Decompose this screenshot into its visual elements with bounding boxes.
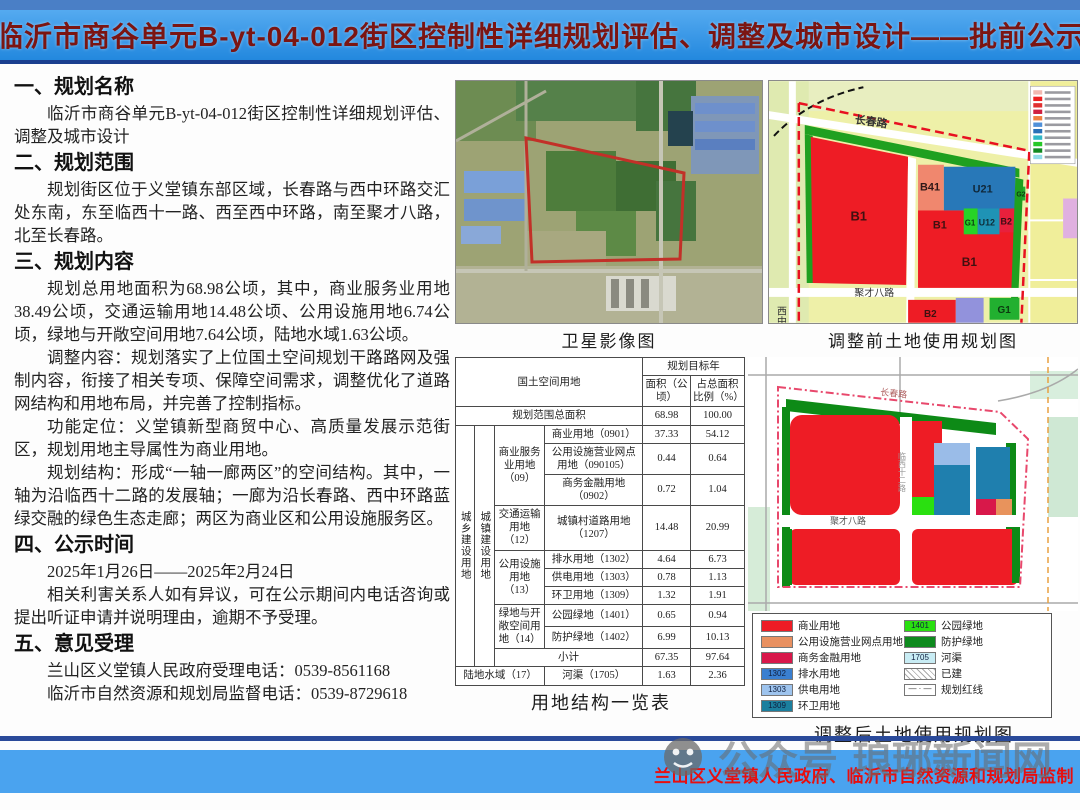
legend-swatch: 1401: [904, 620, 936, 632]
parcel-label: U12: [979, 217, 995, 227]
table-row: 规划范围总面积 68.98 100.00: [456, 407, 745, 425]
legend-text-line: [1045, 124, 1071, 127]
cell-area: 4.64: [643, 550, 691, 568]
road: [769, 288, 1077, 297]
total-label: 规划范围总面积: [456, 407, 643, 425]
parcel-finance: [976, 499, 996, 515]
legend-label: 已建: [941, 666, 962, 681]
section-plan-name: 一、规划名称 临沂市商谷单元B-yt-04-012街区控制性详细规划评估、调整及…: [14, 74, 450, 148]
row-label: 公园绿地（1401）: [545, 604, 643, 626]
group-label: 商业服务业用地（09）: [494, 425, 545, 506]
water-label: 陆地水域（17）: [456, 667, 545, 685]
legend-label: 公园绿地: [941, 618, 983, 633]
legend-text-line: [1045, 143, 1071, 146]
paragraph: 规划总用地面积为68.98公顷，其中，商业服务业用地38.49公顷，交通运输用地…: [14, 277, 450, 346]
legend-item: 规划红线: [904, 683, 1047, 696]
row-label: 防护绿地（1402）: [545, 627, 643, 649]
total-pct: 100.00: [691, 407, 745, 425]
cell-pct: 10.13: [691, 627, 745, 649]
cell-pct: 0.94: [691, 604, 745, 626]
notice-poster: 临沂市商谷单元B-yt-04-012街区控制性详细规划评估、调整及城市设计——批…: [0, 0, 1080, 810]
legend-swatch: [904, 636, 936, 648]
group-label: 绿地与开敞空间用地（14）: [494, 604, 545, 648]
parcel-label: U21: [973, 184, 993, 196]
industrial-area: [464, 171, 526, 193]
legend-label: 环卫用地: [798, 698, 840, 713]
water-area: 1.63: [643, 667, 691, 685]
road: [778, 515, 1026, 527]
parcel-label: B2: [1000, 216, 1011, 226]
notice-dates: 2025年1月26日——2025年2月24日: [14, 560, 450, 583]
divider-rule: [0, 736, 1080, 741]
parcel-commercial: [912, 529, 1018, 585]
parcel-drainage: [976, 447, 1010, 499]
legend-swatch: [1033, 116, 1042, 120]
section-plan-scope: 二、规划范围 规划街区位于义堂镇东部区域，长春路与西中环路交汇处东南，东至临西十…: [14, 150, 450, 247]
legend-label: 供电用地: [798, 682, 840, 697]
cell-pct: 54.12: [691, 425, 745, 443]
cell-area: 0.72: [643, 474, 691, 505]
cell-pct: 1.13: [691, 568, 745, 586]
parcel-label: B1: [850, 208, 867, 223]
legend-item: 防护绿地: [904, 635, 1047, 648]
parcel-label: B41: [920, 182, 940, 194]
legend-item: 1309 环卫用地: [761, 699, 904, 712]
cell-pct: 0.64: [691, 443, 745, 474]
legend-item: 公用设施营业网点用地: [761, 635, 904, 648]
row-label: 商业用地（0901）: [545, 425, 643, 443]
legend-swatch: 1705: [904, 652, 936, 664]
parcel-label: B1: [933, 219, 947, 231]
legend-text-line: [1045, 130, 1071, 133]
parcel-label: B1: [962, 255, 978, 269]
legend-item: 商业用地: [761, 619, 904, 632]
legend-item: 1303 供电用地: [761, 683, 904, 696]
text-column: 一、规划名称 临沂市商谷单元B-yt-04-012街区控制性详细规划评估、调整及…: [14, 72, 450, 705]
cell-area: 0.78: [643, 568, 691, 586]
after-map-legend: 商业用地 公用设施营业网点用地 商务金融用地 1302 排水用地 1303 供电…: [752, 613, 1052, 718]
cell-area: 6.99: [643, 627, 691, 649]
legend-swatch: [1033, 97, 1042, 101]
legend-swatch: [1033, 123, 1042, 127]
table-row: 城乡建设用地 城镇建设用地 商业服务业用地（09） 商业用地（0901） 37.…: [456, 425, 745, 443]
road: [900, 417, 912, 587]
section-feedback: 五、意见受理 兰山区义堂镇人民政府受理电话：0539-8561168 临沂市自然…: [14, 631, 450, 705]
legend-text-line: [1045, 98, 1071, 101]
row-label: 排水用地（1302）: [545, 550, 643, 568]
legend-label: 排水用地: [798, 666, 840, 681]
before-map-block: 长春路 聚才八路 西中环路 B1 B41 U21 G2 B1 G1 U12 B2…: [768, 80, 1078, 352]
top-blue-strip: [0, 0, 1080, 10]
parcel-label: B2: [924, 309, 937, 320]
legend-item: 商务金融用地: [761, 651, 904, 664]
land-use-table: 国土空间用地 规划目标年 面积（公顷） 占总面积比例（%） 规划范围总面积 68…: [455, 357, 745, 686]
legend-item: 已建: [904, 667, 1047, 680]
legend-item: 1705 河渠: [904, 651, 1047, 664]
table-row: 小计 67.35 97.64: [456, 649, 745, 667]
subtotal-label: 小计: [494, 649, 642, 667]
page-title: 临沂市商谷单元B-yt-04-012街区控制性详细规划评估、调整及城市设计——批…: [0, 15, 1080, 55]
row-label: 环卫用地（1309）: [545, 586, 643, 604]
paragraph: 调整内容：规划落实了上位国土空间规划干路路网及强制内容，衔接了相关专项、保障空间…: [14, 346, 450, 415]
cell-area: 1.32: [643, 586, 691, 604]
vertical-label: 城乡建设用地: [456, 425, 475, 667]
title-banner: 临沂市商谷单元B-yt-04-012街区控制性详细规划评估、调整及城市设计——批…: [0, 10, 1080, 64]
cell-area: 0.44: [643, 443, 691, 474]
cell-pct: 1.91: [691, 586, 745, 604]
water-sub-label: 河渠（1705）: [545, 667, 643, 685]
row-label: 公用设施营业网点用地（090105）: [545, 443, 643, 474]
parcel-label: G1: [965, 218, 976, 227]
legend-swatch: [761, 636, 793, 648]
cell-pct: 20.99: [691, 506, 745, 550]
legend-column-right: 1401 公园绿地 防护绿地 1705 河渠 已建 规划红线: [904, 619, 1047, 712]
satellite-map-block: 卫星影像图: [455, 80, 763, 352]
subtotal-pct: 97.64: [691, 649, 745, 667]
paragraph: 相关利害关系人如有异议，可在公示期间内电话咨询或提出听证申请并说明理由，逾期不予…: [14, 583, 450, 629]
legend-swatch: 1303: [761, 684, 793, 696]
legend-swatch: 1302: [761, 668, 793, 680]
vertical-label: 城镇建设用地: [475, 425, 494, 667]
header-area: 面积（公顷）: [643, 376, 691, 407]
group-label: 公用设施用地（13）: [494, 550, 545, 604]
legend-text-line: [1045, 104, 1071, 107]
before-land-use-map: 长春路 聚才八路 西中环路 B1 B41 U21 G2 B1 G1 U12 B2…: [768, 80, 1078, 324]
table-row: 国土空间用地 规划目标年: [456, 358, 745, 376]
legend-label: 规划红线: [941, 682, 983, 697]
legend-text-line: [1045, 111, 1071, 114]
table-caption: 用地结构一览表: [455, 689, 747, 715]
row-label: 商务金融用地（0902）: [545, 474, 643, 505]
water-pct: 2.36: [691, 667, 745, 685]
section-heading: 四、公示时间: [14, 532, 450, 559]
parcel-power: [934, 443, 970, 465]
after-land-use-map: 长春路 聚才八路 临西十二路: [748, 357, 1078, 611]
after-map-caption: 调整后土地使用规划图: [748, 721, 1080, 747]
parcel-utility-outlet: [996, 499, 1012, 515]
legend-swatch: [1033, 155, 1042, 159]
section-notice-period: 四、公示时间 2025年1月26日——2025年2月24日 相关利害关系人如有异…: [14, 532, 450, 629]
cell-area: 14.48: [643, 506, 691, 550]
section-heading: 二、规划范围: [14, 150, 450, 177]
road: [789, 81, 796, 322]
legend-item: 1302 排水用地: [761, 667, 904, 680]
legend-label: 公用设施营业网点用地: [798, 634, 903, 649]
header-pct: 占总面积比例（%）: [691, 376, 745, 407]
legend-swatch: [761, 652, 793, 664]
cell-area: 0.65: [643, 604, 691, 626]
legend-label: 防护绿地: [941, 634, 983, 649]
land-table-block: 国土空间用地 规划目标年 面积（公顷） 占总面积比例（%） 规划范围总面积 68…: [455, 357, 747, 715]
paragraph: 临沂市商谷单元B-yt-04-012街区控制性详细规划评估、调整及城市设计: [14, 102, 450, 148]
section-plan-content: 三、规划内容 规划总用地面积为68.98公顷，其中，商业服务业用地38.49公顷…: [14, 249, 450, 530]
satellite-image: [455, 80, 763, 324]
cell-pct: 1.04: [691, 474, 745, 505]
legend-swatch: [1033, 148, 1042, 152]
cell-pct: 6.73: [691, 550, 745, 568]
legend-text-line: [1045, 91, 1071, 94]
parcel-label: G1: [998, 305, 1012, 316]
road-label: 西中环路: [774, 306, 786, 324]
legend-swatch: [904, 684, 936, 696]
section-heading: 三、规划内容: [14, 249, 450, 276]
legend-swatch: [761, 620, 793, 632]
row-label: 城镇村道路用地（1207）: [545, 506, 643, 550]
legend-swatch: [904, 668, 936, 680]
cell-area: 37.33: [643, 425, 691, 443]
legend-text-line: [1045, 149, 1071, 152]
road-label: 临西十二路: [898, 451, 907, 492]
table-row: 公用设施用地（13） 排水用地（1302） 4.64 6.73: [456, 550, 745, 568]
phone-line: 兰山区义堂镇人民政府受理电话：0539-8561168: [14, 659, 450, 682]
credit-text: 兰山区义堂镇人民政府、临沂市自然资源和规划局监制: [654, 762, 1074, 787]
before-map-caption: 调整前土地使用规划图: [768, 327, 1078, 352]
satellite-caption: 卫星影像图: [455, 327, 763, 352]
road-label: 聚才八路: [830, 515, 866, 526]
legend-label: 商业用地: [798, 618, 840, 633]
legend-text-line: [1045, 117, 1071, 120]
row-label: 供电用地（1303）: [545, 568, 643, 586]
legend-label: 河渠: [941, 650, 962, 665]
paragraph: 功能定位：义堂镇新型商贸中心、高质量发展示范街区，规划用地主导属性为商业用地。: [14, 415, 450, 461]
table-row: 绿地与开敞空间用地（14） 公园绿地（1401） 0.65 0.94: [456, 604, 745, 626]
header-year: 规划目标年: [643, 358, 745, 376]
legend-column-left: 商业用地 公用设施营业网点用地 商务金融用地 1302 排水用地 1303 供电…: [761, 619, 904, 712]
paragraph: 规划街区位于义堂镇东部区域，长春路与西中环路交汇处东南，东至临西十一路、西至西中…: [14, 178, 450, 247]
parcel-label: G2: [1016, 192, 1025, 199]
legend-swatch: [1033, 103, 1042, 107]
legend-text-line: [1045, 136, 1071, 139]
parcel-park-green: [912, 497, 934, 515]
legend-label: 商务金融用地: [798, 650, 861, 665]
section-heading: 一、规划名称: [14, 74, 450, 101]
legend-swatch: [1033, 135, 1042, 139]
paragraph: 规划结构：形成“一轴一廊两区”的空间结构。其中，一轴为沿临西十二路的发展轴；一廊…: [14, 461, 450, 530]
parcel-commercial: [790, 529, 900, 585]
section-heading: 五、意见受理: [14, 631, 450, 658]
subtotal-area: 67.35: [643, 649, 691, 667]
legend-swatch: [1033, 110, 1042, 114]
after-map-block: 长春路 聚才八路 临西十二路 商业用地 公用设施营业网点用地 商务金融用地 13…: [748, 357, 1080, 747]
legend-swatch: 1309: [761, 700, 793, 712]
legend-swatch: [1033, 90, 1042, 94]
road: [970, 443, 976, 515]
legend-text-line: [1045, 156, 1071, 159]
table-row: 交通运输用地（12） 城镇村道路用地（1207） 14.48 20.99: [456, 506, 745, 550]
legend-swatch: [1033, 129, 1042, 133]
road-label: 聚才八路: [854, 286, 894, 299]
parcel-drainage: [934, 465, 970, 515]
legend-item: 1401 公园绿地: [904, 619, 1047, 632]
group-label: 交通运输用地（12）: [494, 506, 545, 550]
table-row: 陆地水域（17） 河渠（1705） 1.63 2.36: [456, 667, 745, 685]
parcel-commercial: [790, 415, 900, 515]
header-land: 国土空间用地: [456, 358, 643, 407]
legend-swatch: [1033, 142, 1042, 146]
total-area: 68.98: [643, 407, 691, 425]
phone-line: 临沂市自然资源和规划局监督电话：0539-8729618: [14, 682, 450, 705]
